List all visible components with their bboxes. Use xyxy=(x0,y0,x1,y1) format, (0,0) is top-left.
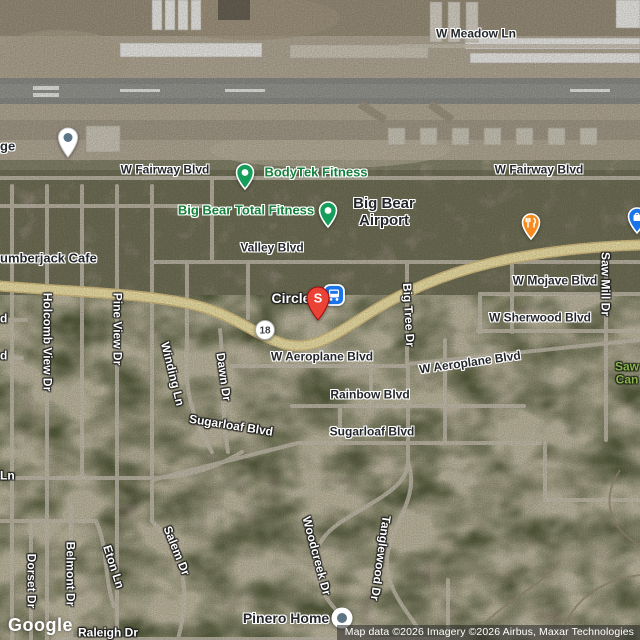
restaurant-icon[interactable] xyxy=(520,213,542,241)
svg-text:S: S xyxy=(314,291,323,306)
storage-pin[interactable] xyxy=(56,127,80,159)
map-viewport[interactable]: W Meadow LnW Fairway BlvdW Fairway BlvdV… xyxy=(0,0,640,640)
svg-text:18: 18 xyxy=(259,326,271,337)
google-logo[interactable]: Google xyxy=(8,615,73,636)
total-fitness-icon[interactable] xyxy=(317,201,339,229)
map-attribution: Map data ©2026 Imagery ©2026 Airbus, Max… xyxy=(337,625,640,640)
map-markers-layer: 18 S xyxy=(0,0,640,640)
route-18-shield: 18 xyxy=(254,319,276,341)
selected-place-pin[interactable]: S xyxy=(305,286,331,322)
shopping-icon[interactable] xyxy=(626,207,640,235)
bodytek-icon[interactable] xyxy=(234,163,256,191)
